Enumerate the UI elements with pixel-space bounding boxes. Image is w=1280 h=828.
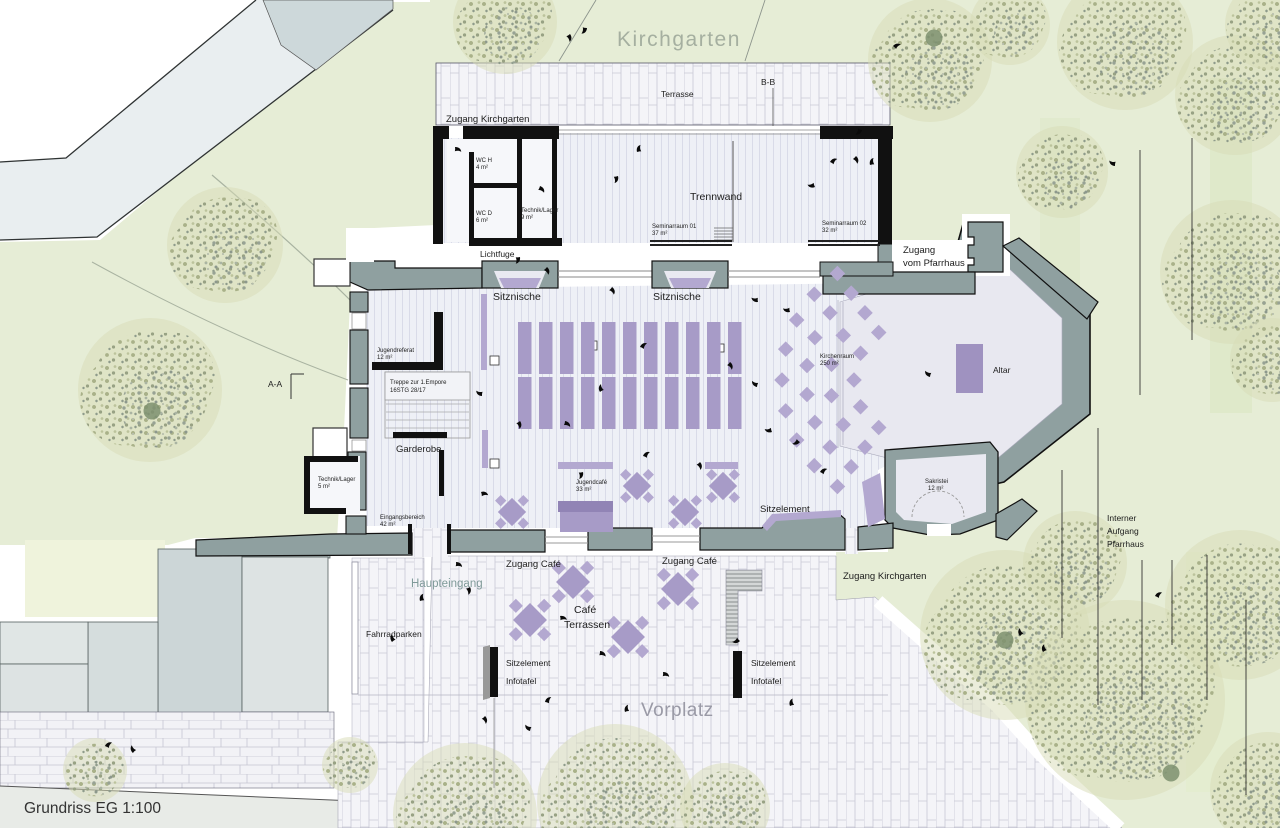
label-wc-d: WC D [476, 211, 493, 217]
pew [707, 377, 721, 429]
tree-trunk [926, 30, 943, 47]
label-kirchenraum-area: 250 m² [820, 361, 839, 367]
pew [539, 377, 553, 429]
pew [518, 322, 532, 374]
cafe-table-group [495, 495, 529, 529]
cafe-counter [558, 501, 613, 532]
pew [623, 377, 637, 429]
tree [1016, 126, 1108, 218]
label-cafe-terrassen: Café [574, 604, 596, 616]
seat-niche-east [652, 261, 728, 288]
info-board-east [733, 651, 742, 698]
label-technik-w: Technik/Lager [318, 477, 355, 483]
cafe-table-group [706, 469, 740, 503]
pew [665, 322, 679, 374]
nw-garden-door [449, 127, 463, 138]
pew [707, 322, 721, 374]
label-interner-aufgang-2: Aufgang [1107, 526, 1139, 536]
main-entrance-paving [411, 527, 448, 557]
cafe-table-group [657, 568, 699, 610]
lawn-patch [25, 540, 165, 617]
label-kirchenraum: Kirchenraum [820, 354, 854, 360]
lichtfuge-slot [346, 228, 374, 262]
label-zugang-cafe-west: Zugang Café [506, 559, 561, 570]
label-trennwand: Trennwand [690, 191, 742, 203]
floor-plan-canvas: Kirchgarten Vorplatz Terrasse B-B A-A Zu… [0, 0, 1280, 828]
label-interner-aufgang-3: Pfarrhaus [1107, 539, 1144, 549]
pew [686, 322, 700, 374]
label-cafe-terrassen-2: Terrassen [564, 619, 610, 631]
label-zugang-cafe-east: Zugang Café [662, 556, 717, 567]
pew [581, 322, 595, 374]
info-board-west [490, 647, 498, 697]
pew [560, 377, 574, 429]
site-plan-drawing: Kirchgarten Vorplatz Terrasse B-B A-A Zu… [0, 0, 1280, 828]
label-wc-h-area: 4 m² [476, 165, 488, 171]
label-garderobe: Garderobe [396, 444, 441, 455]
cafe-table-group [668, 495, 702, 529]
label-sitzelement: Sitzelement [760, 504, 810, 515]
label-vorplatz: Vorplatz [641, 700, 714, 721]
garderobe-wall [393, 432, 447, 438]
label-zugang-pfarrhaus-2: vom Pfarrhaus [903, 258, 965, 269]
west-porch [313, 428, 347, 458]
label-section-aa: A-A [268, 379, 283, 389]
label-sitzelement-west: Sitzelement [506, 658, 551, 668]
label-seminarraum-02-area: 32 m² [822, 228, 837, 234]
jugendreferat-wall [434, 312, 443, 370]
label-technik-w-area: 5 m² [318, 484, 330, 490]
label-jugendreferat: Jugendreferat [377, 348, 414, 354]
pew [539, 322, 553, 374]
label-wc-d-area: 6 m² [476, 218, 488, 224]
label-zugang-kirchgarten-nw: Zugang Kirchgarten [446, 114, 529, 125]
label-wc-h: WC H [476, 158, 492, 164]
tree [322, 737, 378, 793]
tree [78, 318, 222, 462]
cafe-table-group [620, 469, 654, 503]
pew [623, 322, 637, 374]
label-infotafel-west: Infotafel [506, 676, 536, 686]
pew [644, 377, 658, 429]
pew [560, 322, 574, 374]
stair-turret [968, 222, 1003, 272]
label-haupteingang: Haupteingang [411, 578, 483, 590]
label-zugang-pfarrhaus: Zugang [903, 245, 935, 256]
label-jugendreferat-area: 12 m² [377, 355, 392, 361]
tree-trunk [144, 403, 161, 420]
plan-title: Grundriss EG 1:100 [24, 800, 161, 817]
west-window [352, 313, 366, 329]
nw-niche [314, 259, 350, 286]
bike-rack [352, 562, 358, 694]
label-sakristei: Sakristei [925, 479, 948, 485]
label-sitznische-west: Sitznische [493, 291, 541, 303]
pew [602, 322, 616, 374]
label-treppe-2: 16STG 28/17 [390, 388, 426, 394]
label-section-bb: B-B [761, 77, 776, 87]
label-seminarraum-02: Seminarraum 02 [822, 221, 867, 227]
technik-lager-west-room [304, 456, 360, 514]
pew [728, 377, 742, 429]
pew [686, 377, 700, 429]
tree-trunk [1163, 765, 1180, 782]
label-zugang-kirchgarten-se: Zugang Kirchgarten [843, 571, 926, 582]
seat-element-west [483, 645, 490, 700]
wc-block-floor [447, 139, 555, 242]
pew [581, 377, 595, 429]
label-sitzelement-east: Sitzelement [751, 658, 796, 668]
sidewalk-paving [0, 712, 334, 788]
label-sakristei-area: 12 m² [928, 486, 943, 492]
pew [665, 377, 679, 429]
label-interner-aufgang: Interner [1107, 513, 1136, 523]
pew [602, 377, 616, 429]
label-kirchgarten: Kirchgarten [617, 28, 741, 51]
label-sitznische-east: Sitznische [653, 291, 701, 303]
label-treppe: Treppe zur 1.Empore [390, 380, 447, 386]
label-seminarraum-01-area: 37 m² [652, 231, 667, 237]
label-eingangsbereich: Eingangsbereich [380, 515, 425, 521]
altar-block [956, 344, 983, 393]
label-jugendcafe: Jugendcafé [576, 480, 608, 486]
label-lichtfuge: Lichtfuge [480, 249, 515, 259]
tree [63, 738, 127, 802]
label-seminarraum-01: Seminarraum 01 [652, 224, 697, 230]
north-wall [350, 261, 482, 290]
west-window [352, 440, 366, 451]
label-jugendcafe-area: 33 m² [576, 487, 591, 493]
seat-niche-west [482, 261, 558, 288]
tree [167, 187, 283, 303]
label-infotafel-east: Infotafel [751, 676, 781, 686]
label-technik-n-area: 9 m² [521, 215, 533, 221]
pew [644, 322, 658, 374]
tree-trunk [997, 632, 1014, 649]
label-eingangsbereich-area: 42 m² [380, 522, 395, 528]
label-terrasse: Terrasse [661, 89, 694, 99]
label-fahrradparken: Fahrradparken [366, 629, 422, 639]
label-technik-n: Technik/Lager [521, 208, 558, 214]
label-altar: Altar [993, 365, 1011, 375]
cafe-table-group [509, 599, 551, 641]
cafe-table-group [607, 616, 649, 658]
